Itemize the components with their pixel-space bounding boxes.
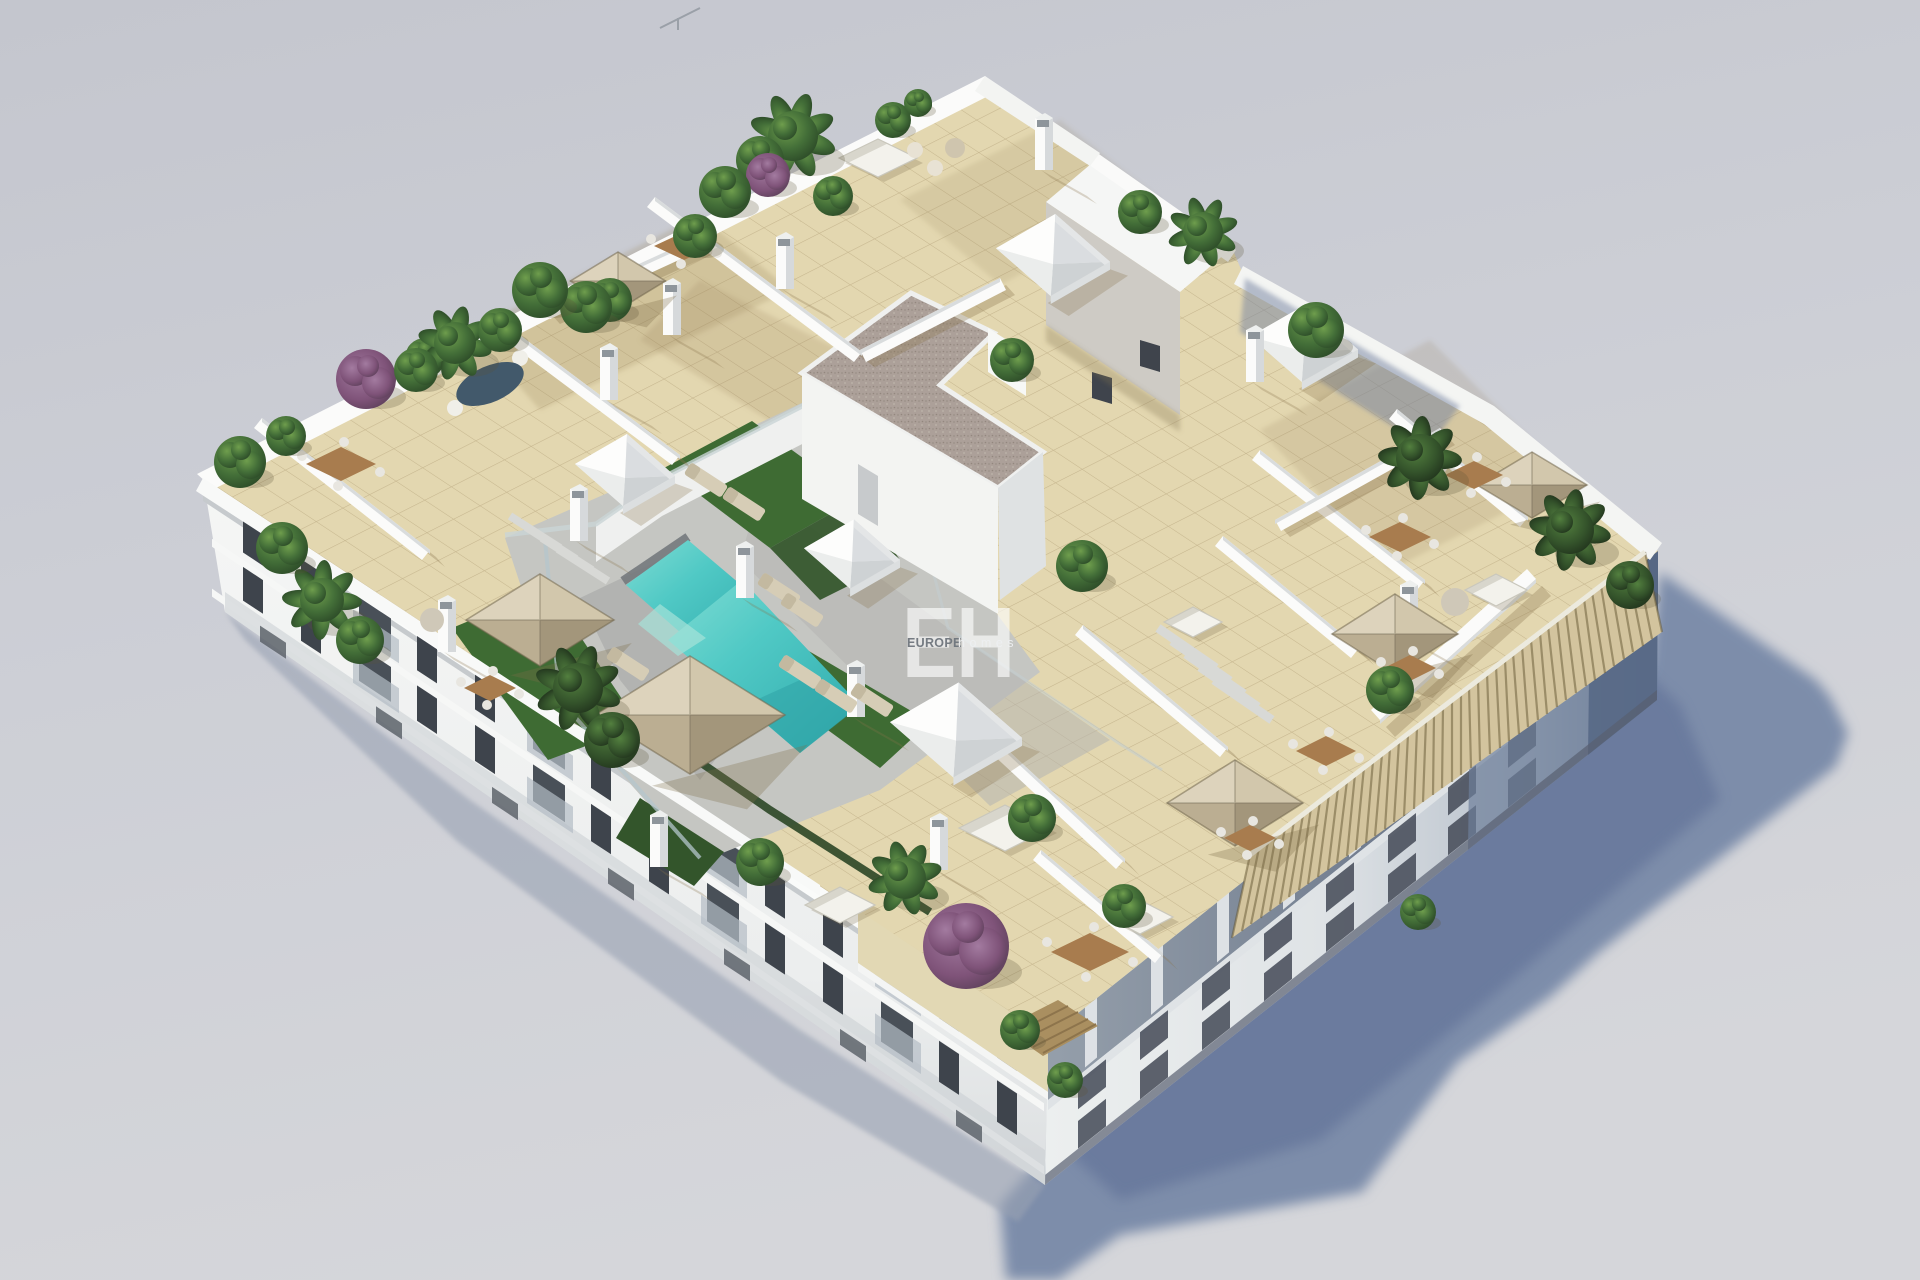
svg-text:EUROPE: EUROPE	[907, 636, 962, 650]
svg-text:homes: homes	[958, 636, 1018, 650]
